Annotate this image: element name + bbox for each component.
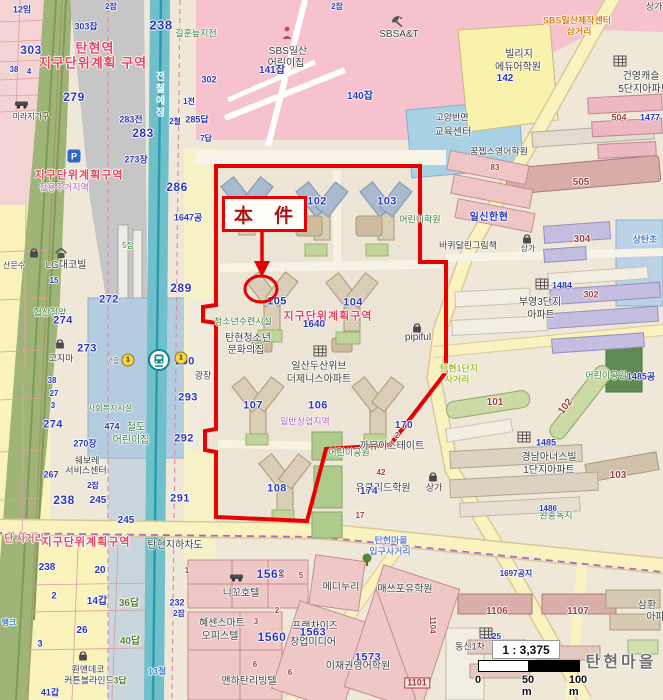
scale-bar — [478, 660, 580, 672]
subject-annotation — [0, 0, 663, 700]
subject-circle — [245, 276, 277, 302]
scale-tick-0: 0 — [475, 674, 481, 686]
subject-label-box: 本 件 — [222, 196, 307, 232]
scale-ratio: 1 : 3,375 — [492, 640, 560, 659]
map-canvas[interactable]: 12임2잡238길훈늪지전303잡303탄현역지구단위계획 구역38427930… — [0, 0, 663, 700]
scale-tick-100: 100 m — [569, 674, 587, 698]
subject-label: 本 件 — [234, 201, 301, 228]
scale-bar-black-half — [528, 660, 580, 672]
scale-tick-50: 50 m — [522, 674, 534, 698]
